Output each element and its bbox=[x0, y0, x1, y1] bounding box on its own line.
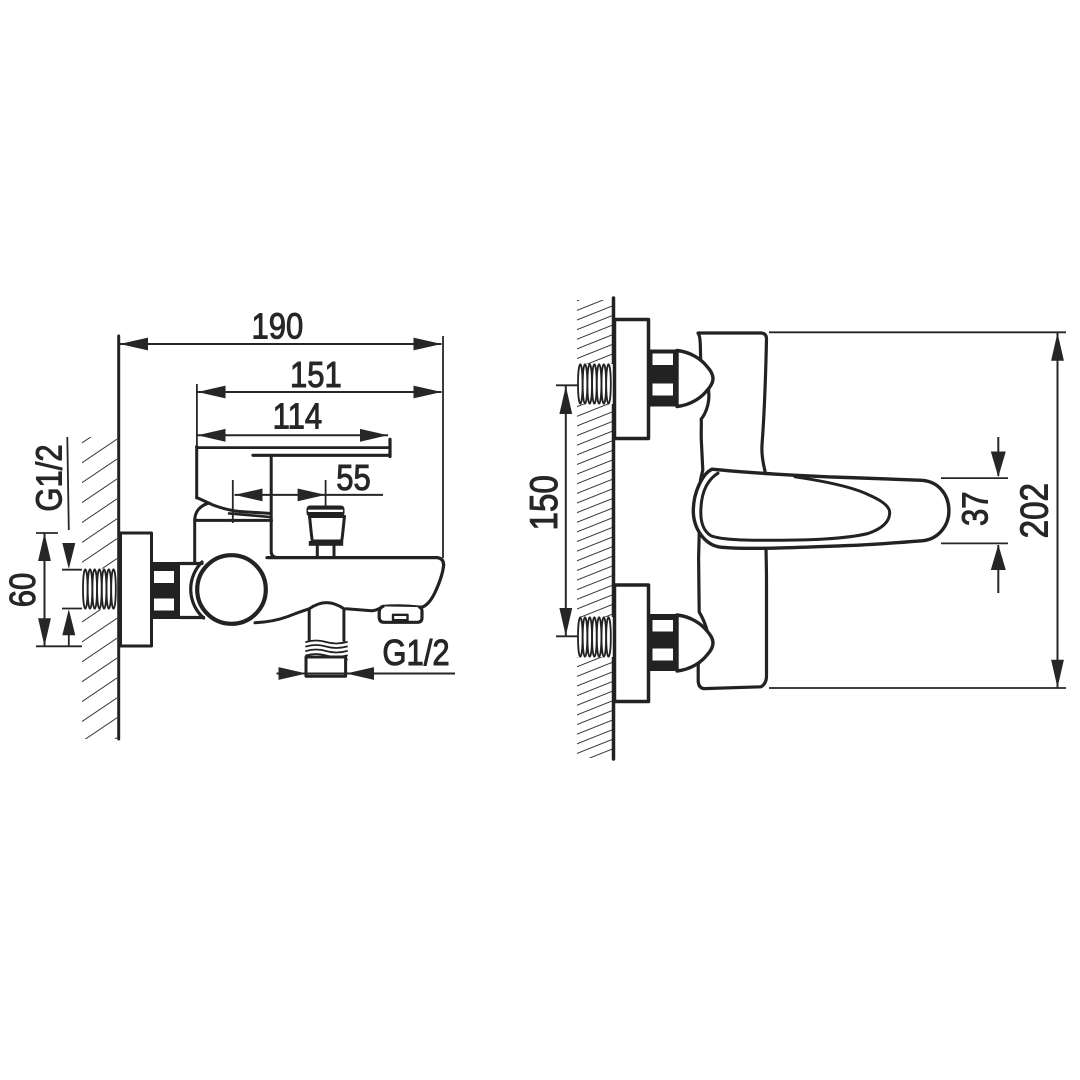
svg-text:190: 190 bbox=[252, 306, 304, 347]
svg-text:G1/2: G1/2 bbox=[382, 632, 449, 673]
svg-text:114: 114 bbox=[273, 396, 322, 437]
svg-text:55: 55 bbox=[336, 458, 371, 499]
svg-text:37: 37 bbox=[955, 491, 996, 526]
svg-text:G1/2: G1/2 bbox=[29, 444, 70, 511]
svg-text:151: 151 bbox=[290, 355, 342, 396]
svg-text:150: 150 bbox=[521, 475, 565, 530]
svg-text:202: 202 bbox=[1012, 483, 1056, 538]
svg-text:60: 60 bbox=[3, 573, 44, 608]
